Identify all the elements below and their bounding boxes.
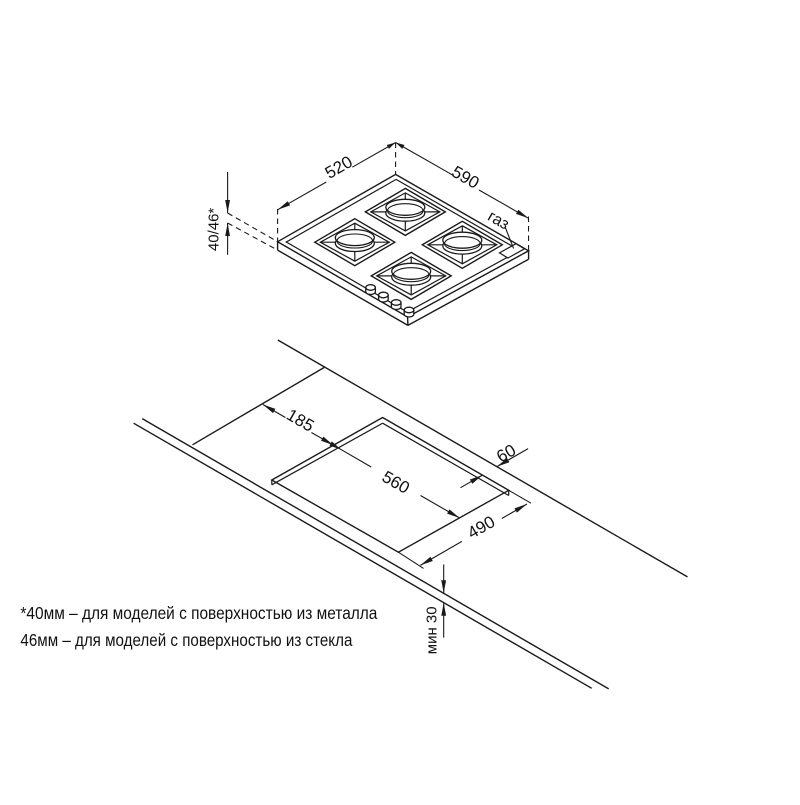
svg-text:40/46*: 40/46*	[206, 208, 223, 252]
svg-text:мин 30: мин 30	[424, 606, 441, 654]
svg-text:46мм – для моделей с поверхнос: 46мм – для моделей с поверхностью из сте…	[20, 630, 352, 650]
svg-text:*40мм – для моделей с поверхно: *40мм – для моделей с поверхностью из ме…	[20, 603, 377, 623]
